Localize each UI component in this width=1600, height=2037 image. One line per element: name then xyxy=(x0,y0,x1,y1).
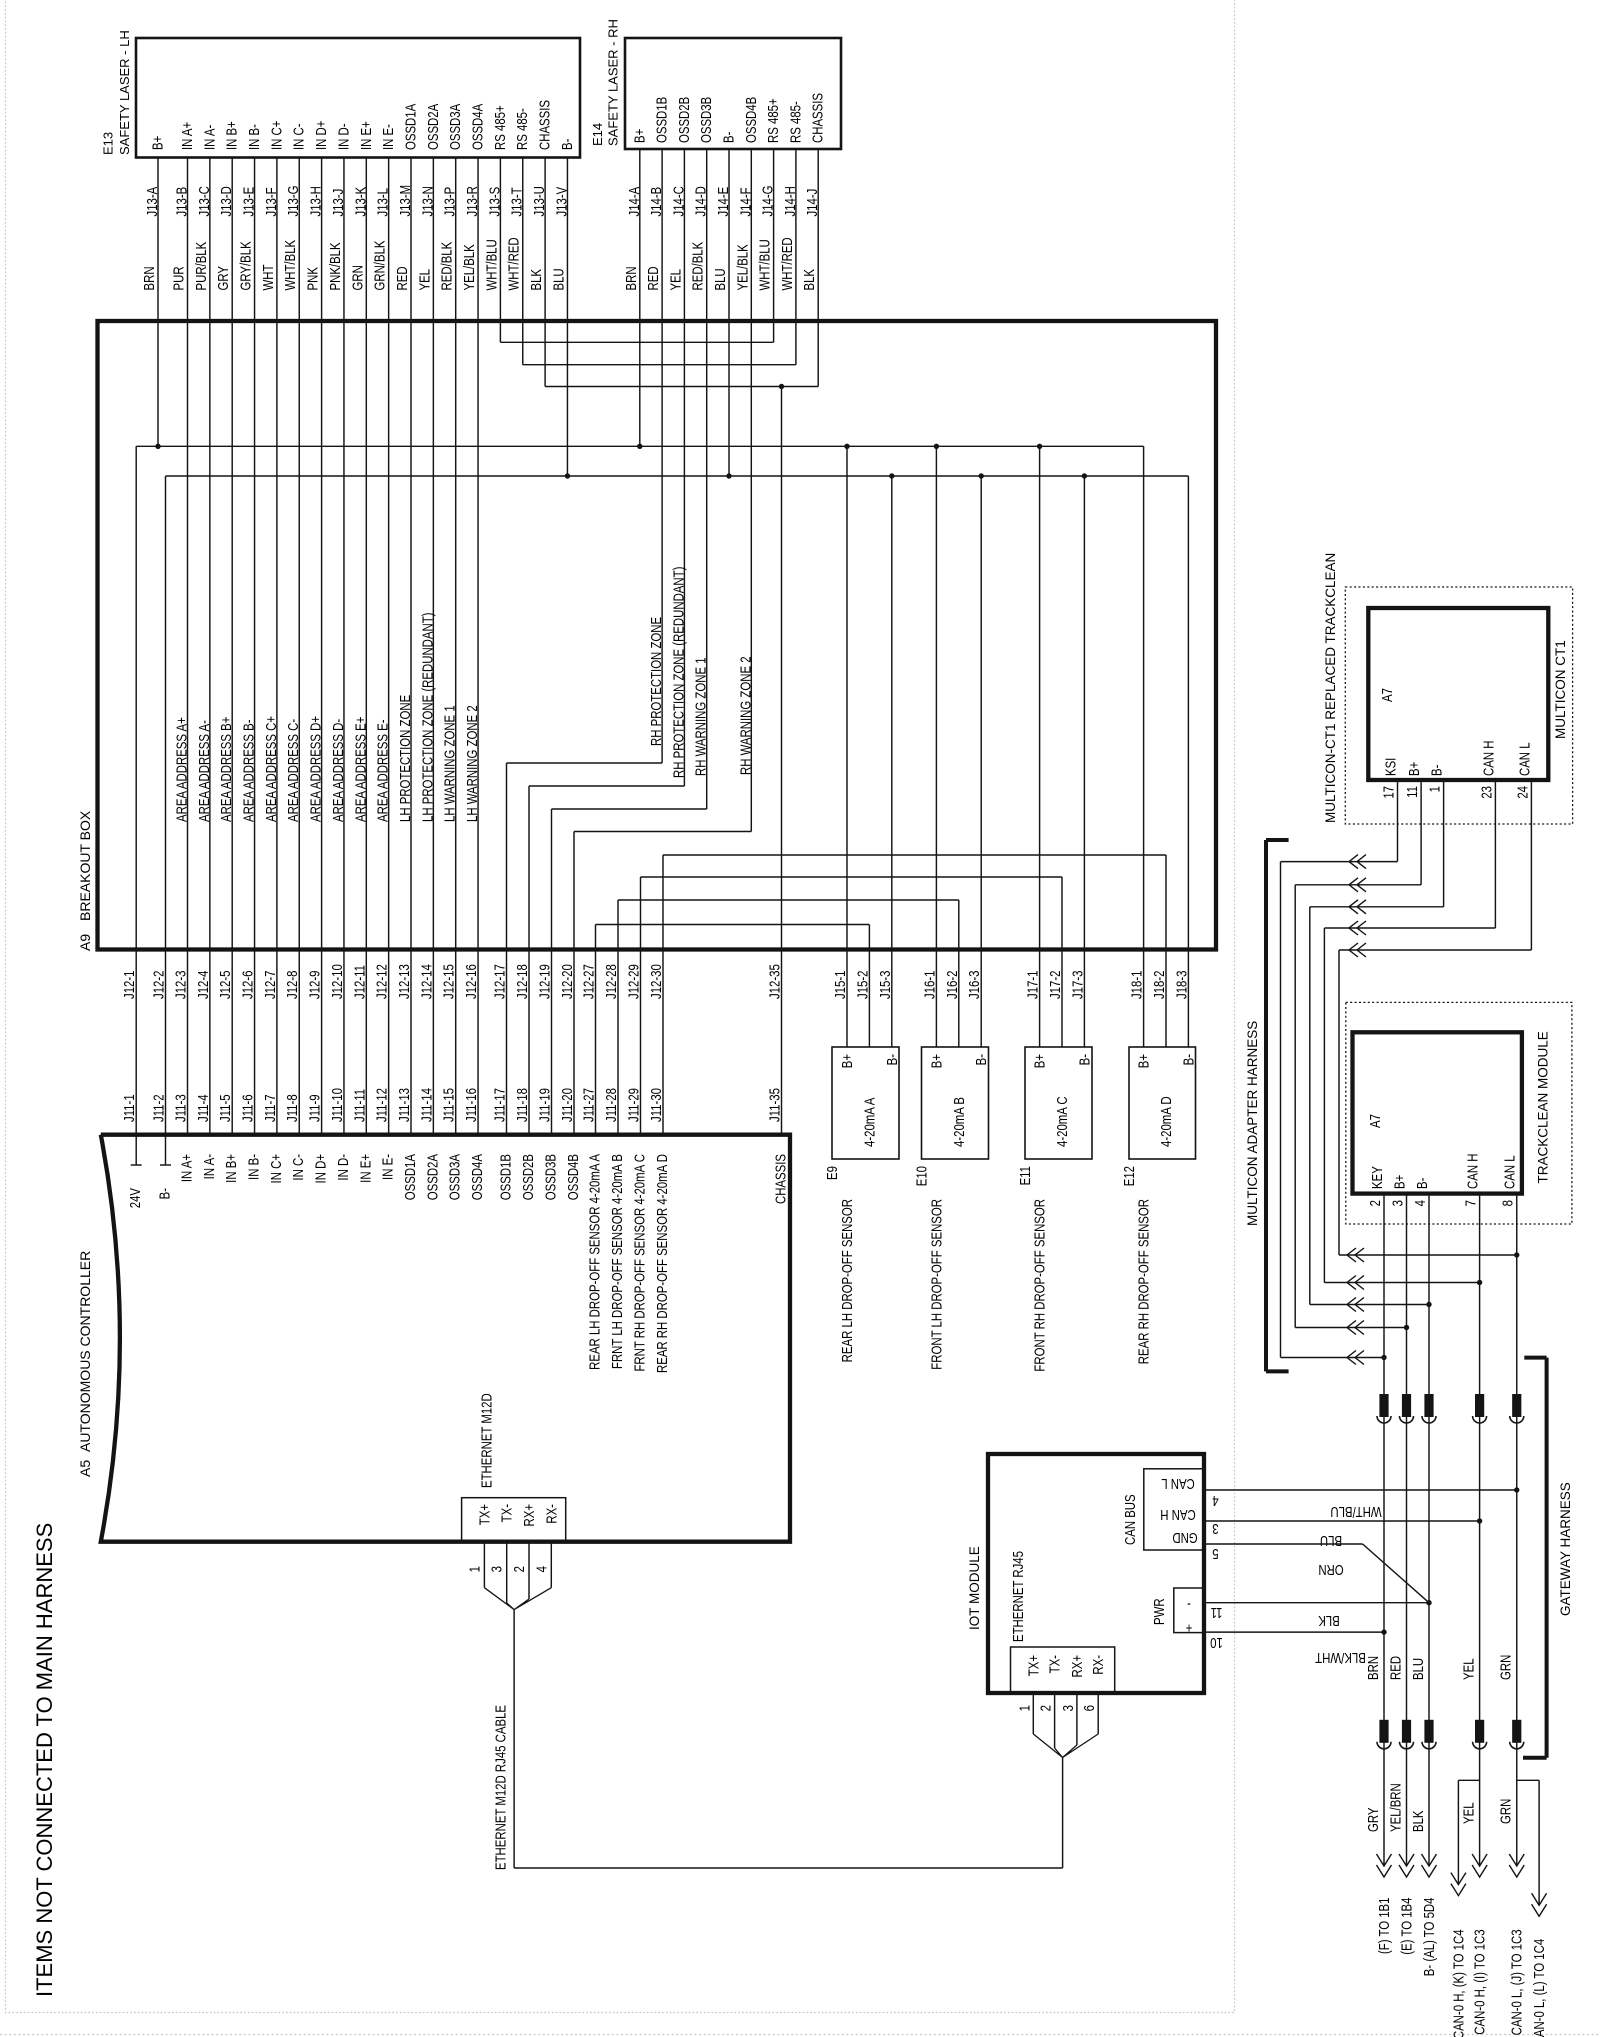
svg-text:B+: B+ xyxy=(631,129,648,143)
svg-text:RH WARNING ZONE 1: RH WARNING ZONE 1 xyxy=(692,657,709,776)
svg-text:BLU: BLU xyxy=(711,268,728,290)
svg-text:RS 485-: RS 485- xyxy=(514,108,531,150)
svg-text:B+: B+ xyxy=(1406,762,1423,776)
svg-text:RX-: RX- xyxy=(1090,1655,1107,1675)
svg-text:AREA ADDRESS B+: AREA ADDRESS B+ xyxy=(218,716,235,822)
svg-text:GRN/BLK: GRN/BLK xyxy=(371,240,388,290)
svg-text:24: 24 xyxy=(1514,785,1531,798)
svg-text:B+: B+ xyxy=(838,1054,855,1068)
svg-text:AREA ADDRESS E-: AREA ADDRESS E- xyxy=(374,719,391,822)
svg-text:J16-2: J16-2 xyxy=(943,970,960,999)
svg-text:IN C+: IN C+ xyxy=(268,120,285,150)
svg-text:J12-15: J12-15 xyxy=(440,964,457,999)
svg-text:J12-2: J12-2 xyxy=(150,970,167,999)
svg-text:J12-1: J12-1 xyxy=(121,970,138,999)
svg-text:+: + xyxy=(1185,1620,1192,1637)
svg-text:J12-35: J12-35 xyxy=(766,964,783,999)
svg-text:J11-28: J11-28 xyxy=(602,1088,619,1122)
svg-text:REAR RH DROP-OFF SENSOR 4-20mA: REAR RH DROP-OFF SENSOR 4-20mA D xyxy=(653,1154,670,1373)
svg-text:J11-35: J11-35 xyxy=(766,1088,783,1122)
svg-text:J11-11: J11-11 xyxy=(351,1089,368,1122)
svg-text:B-: B- xyxy=(883,1054,900,1065)
svg-text:YEL: YEL xyxy=(667,269,684,291)
svg-text:10: 10 xyxy=(1210,1635,1223,1652)
svg-text:OSSD3B: OSSD3B xyxy=(542,1154,559,1200)
svg-text:J11-18: J11-18 xyxy=(513,1088,530,1122)
svg-text:OSSD2A: OSSD2A xyxy=(424,1154,441,1200)
svg-text:GRN: GRN xyxy=(1497,1655,1514,1680)
svg-text:J11-19: J11-19 xyxy=(536,1088,553,1122)
svg-text:PUR/BLK: PUR/BLK xyxy=(192,242,209,291)
svg-text:IN D-: IN D- xyxy=(334,1154,351,1181)
svg-text:B+: B+ xyxy=(149,136,166,150)
svg-text:OSSD1B: OSSD1B xyxy=(497,1154,514,1200)
svg-text:REAR LH DROP-OFF SENSOR: REAR LH DROP-OFF SENSOR xyxy=(838,1199,855,1362)
svg-text:MULTICON CT1: MULTICON CT1 xyxy=(1553,640,1568,739)
svg-text:1: 1 xyxy=(466,1566,483,1572)
svg-text:J11-20: J11-20 xyxy=(558,1088,575,1122)
svg-text:PNK/BLK: PNK/BLK xyxy=(326,242,343,290)
svg-text:RX-: RX- xyxy=(543,1504,560,1524)
svg-text:REAR LH DROP-OFF SENSOR 4-20mA: REAR LH DROP-OFF SENSOR 4-20mA A xyxy=(586,1154,603,1370)
svg-text:OSSD4A: OSSD4A xyxy=(469,1154,486,1200)
svg-text:IN B+: IN B+ xyxy=(223,1154,240,1183)
svg-text:TRACKCLEAN MODULE: TRACKCLEAN MODULE xyxy=(1536,1031,1551,1183)
svg-text:J11-7: J11-7 xyxy=(261,1094,278,1122)
svg-text:4-20mA D: 4-20mA D xyxy=(1157,1096,1174,1147)
svg-text:FRONT LH DROP-OFF SENSOR: FRONT LH DROP-OFF SENSOR xyxy=(928,1199,945,1370)
svg-text:A7: A7 xyxy=(1378,688,1395,702)
svg-text:OSSD3B: OSSD3B xyxy=(698,97,715,143)
svg-text:J18-3: J18-3 xyxy=(1173,970,1190,999)
svg-text:CHASSIS: CHASSIS xyxy=(772,1154,789,1204)
svg-text:5: 5 xyxy=(1212,1546,1218,1563)
svg-text:OSSD2B: OSSD2B xyxy=(519,1154,536,1200)
svg-text:OSSD2A: OSSD2A xyxy=(424,104,441,150)
svg-text:OSSD4A: OSSD4A xyxy=(469,104,486,150)
svg-text:1: 1 xyxy=(1426,786,1443,792)
svg-text:FRNT LH DROP-OFF SENSOR 4-20mA: FRNT LH DROP-OFF SENSOR 4-20mA B xyxy=(608,1154,625,1369)
svg-text:B-: B- xyxy=(1428,765,1445,776)
svg-text:BLK: BLK xyxy=(1409,1810,1426,1832)
svg-text:WHT/RED: WHT/RED xyxy=(778,237,795,290)
svg-text:J11-4: J11-4 xyxy=(194,1094,211,1122)
svg-text:A7: A7 xyxy=(1366,1114,1383,1128)
svg-text:J12-3: J12-3 xyxy=(172,970,189,999)
svg-text:J12-14: J12-14 xyxy=(418,964,435,999)
svg-text:OSSD3A: OSSD3A xyxy=(447,104,464,150)
svg-text:CAN-0 H, (K) TO 1C4: CAN-0 H, (K) TO 1C4 xyxy=(1450,1929,1467,2037)
svg-text:24V: 24V xyxy=(127,1188,144,1208)
svg-text:B+: B+ xyxy=(1135,1054,1152,1068)
svg-text:IN A+: IN A+ xyxy=(178,1154,195,1182)
svg-text:E12: E12 xyxy=(1120,1166,1137,1186)
svg-text:IN A-: IN A- xyxy=(200,1154,217,1179)
svg-text:4-20mA C: 4-20mA C xyxy=(1053,1096,1070,1147)
svg-text:SAFETY LASER - LH: SAFETY LASER - LH xyxy=(117,30,132,155)
svg-text:J15-2: J15-2 xyxy=(854,970,871,999)
svg-text:YEL: YEL xyxy=(1460,1658,1477,1680)
svg-text:RS 485-: RS 485- xyxy=(787,101,804,143)
svg-text:(F) TO 1B1: (F) TO 1B1 xyxy=(1375,1897,1392,1954)
svg-text:8: 8 xyxy=(1499,1200,1516,1206)
svg-text:J12-27: J12-27 xyxy=(580,964,597,999)
svg-text:-: - xyxy=(1187,1597,1191,1614)
svg-text:WHT/BLU: WHT/BLU xyxy=(483,239,500,290)
svg-text:IN C+: IN C+ xyxy=(267,1154,284,1184)
svg-text:J11-27: J11-27 xyxy=(580,1088,597,1122)
svg-text:J16-3: J16-3 xyxy=(966,970,983,999)
svg-text:RED/BLK: RED/BLK xyxy=(438,242,455,291)
svg-text:B-: B- xyxy=(1413,1178,1430,1189)
svg-text:YEL: YEL xyxy=(416,269,433,291)
svg-text:WHT/BLU: WHT/BLU xyxy=(1330,1504,1381,1521)
svg-text:WHT/BLK: WHT/BLK xyxy=(282,240,299,291)
svg-text:J12-29: J12-29 xyxy=(625,964,642,999)
svg-text:BRN: BRN xyxy=(1364,1656,1381,1680)
svg-text:J11-8: J11-8 xyxy=(284,1094,301,1122)
svg-text:TX+: TX+ xyxy=(1025,1655,1042,1676)
svg-text:J17-3: J17-3 xyxy=(1069,970,1086,999)
svg-text:4: 4 xyxy=(1212,1493,1219,1510)
svg-text:TX-: TX- xyxy=(498,1504,515,1522)
svg-text:CAN H: CAN H xyxy=(1464,1154,1481,1189)
svg-text:BLU: BLU xyxy=(1320,1533,1342,1550)
svg-text:ETHERNET RJ45: ETHERNET RJ45 xyxy=(1009,1551,1026,1642)
svg-text:J12-4: J12-4 xyxy=(194,970,211,999)
svg-text:J12-5: J12-5 xyxy=(217,970,234,999)
svg-text:CAN L: CAN L xyxy=(1161,1476,1195,1493)
svg-text:ITEMS NOT CONNECTED TO MAIN HA: ITEMS NOT CONNECTED TO MAIN HARNESS xyxy=(32,1523,57,1997)
svg-text:IN D+: IN D+ xyxy=(313,120,330,150)
svg-text:MULTICON ADAPTER HARNESS: MULTICON ADAPTER HARNESS xyxy=(1245,1021,1260,1226)
svg-text:GATEWAY HARNESS: GATEWAY HARNESS xyxy=(1558,1482,1573,1616)
svg-text:A5: A5 xyxy=(77,1460,93,1477)
svg-text:PUR: PUR xyxy=(170,266,187,290)
svg-text:RED/BLK: RED/BLK xyxy=(689,242,706,291)
svg-text:YEL/BLK: YEL/BLK xyxy=(734,244,751,290)
svg-text:YEL/BRN: YEL/BRN xyxy=(1387,1783,1404,1832)
svg-text:BLK: BLK xyxy=(801,269,818,291)
svg-text:J12-6: J12-6 xyxy=(239,970,256,999)
svg-text:2: 2 xyxy=(1366,1200,1383,1206)
svg-text:4-20mA A: 4-20mA A xyxy=(861,1098,878,1147)
svg-text:CAN BUS: CAN BUS xyxy=(1121,1494,1138,1545)
svg-text:J12-10: J12-10 xyxy=(328,964,345,999)
svg-text:E14: E14 xyxy=(590,123,605,146)
svg-text:B-: B- xyxy=(973,1054,990,1065)
svg-text:IN A-: IN A- xyxy=(201,125,218,150)
svg-text:RH PROTECTION ZONE: RH PROTECTION ZONE xyxy=(648,617,665,746)
svg-text:AREA ADDRESS D-: AREA ADDRESS D- xyxy=(329,719,346,822)
svg-text:OSSD4B: OSSD4B xyxy=(564,1154,581,1200)
svg-text:J11-16: J11-16 xyxy=(463,1088,480,1122)
svg-text:OSSD1B: OSSD1B xyxy=(653,97,670,143)
svg-text:FRNT RH DROP-OFF SENSOR 4-20mA: FRNT RH DROP-OFF SENSOR 4-20mA C xyxy=(631,1154,648,1372)
svg-text:J12-20: J12-20 xyxy=(558,964,575,999)
svg-text:RX+: RX+ xyxy=(520,1504,537,1527)
svg-text:AREA ADDRESS C-: AREA ADDRESS C- xyxy=(285,719,302,822)
svg-text:11: 11 xyxy=(1211,1605,1223,1622)
svg-text:TX-: TX- xyxy=(1046,1655,1063,1673)
svg-text:J12-8: J12-8 xyxy=(284,970,301,999)
svg-text:OSSD1A: OSSD1A xyxy=(402,104,419,150)
svg-text:B+: B+ xyxy=(1031,1054,1048,1068)
svg-text:J11-3: J11-3 xyxy=(172,1094,189,1122)
svg-text:B-: B- xyxy=(558,139,575,150)
svg-text:J16-1: J16-1 xyxy=(921,970,938,999)
svg-text:LH PROTECTION ZONE: LH PROTECTION ZONE xyxy=(396,695,413,822)
svg-text:MULTICON-CT1 REPLACED TRACKCLE: MULTICON-CT1 REPLACED TRACKCLEAN xyxy=(1323,553,1338,823)
svg-text:11: 11 xyxy=(1404,786,1421,798)
svg-text:J12-12: J12-12 xyxy=(373,964,390,999)
svg-text:CAN-0 L, (L) TO 1C4: CAN-0 L, (L) TO 1C4 xyxy=(1531,1938,1548,2037)
svg-text:RED: RED xyxy=(645,266,662,290)
svg-text:6: 6 xyxy=(1081,1705,1098,1711)
svg-text:J11-1: J11-1 xyxy=(121,1094,138,1122)
svg-text:J11-17: J11-17 xyxy=(491,1088,508,1122)
svg-text:J12-13: J12-13 xyxy=(395,964,412,999)
svg-text:B-: B- xyxy=(1076,1054,1093,1065)
svg-text:LH WARNING ZONE 2: LH WARNING ZONE 2 xyxy=(464,705,481,822)
svg-text:E10: E10 xyxy=(913,1166,930,1186)
svg-text:B-: B- xyxy=(720,132,737,143)
svg-text:BLK: BLK xyxy=(1318,1613,1340,1630)
svg-text:RED: RED xyxy=(393,266,410,290)
svg-text:7: 7 xyxy=(1462,1200,1479,1206)
svg-text:J11-10: J11-10 xyxy=(328,1088,345,1122)
svg-text:AREA ADDRESS D+: AREA ADDRESS D+ xyxy=(307,716,324,822)
svg-text:WHT/RED: WHT/RED xyxy=(505,237,522,290)
svg-text:J11-9: J11-9 xyxy=(306,1094,323,1122)
svg-text:BREAKOUT BOX: BREAKOUT BOX xyxy=(77,810,93,921)
svg-text:OSSD2B: OSSD2B xyxy=(675,97,692,143)
svg-text:J12-7: J12-7 xyxy=(261,970,278,999)
svg-text:BLK: BLK xyxy=(528,269,545,291)
svg-text:IN B+: IN B+ xyxy=(223,121,240,150)
svg-text:GRY: GRY xyxy=(215,266,232,291)
svg-text:IN C-: IN C- xyxy=(290,1154,307,1181)
svg-text:4-20mA B: 4-20mA B xyxy=(950,1097,967,1147)
svg-text:CHASSIS: CHASSIS xyxy=(809,93,826,143)
svg-text:B+: B+ xyxy=(928,1054,945,1068)
svg-text:WHT/BLU: WHT/BLU xyxy=(756,239,773,290)
svg-text:IN E-: IN E- xyxy=(379,1154,396,1180)
svg-text:CHASSIS: CHASSIS xyxy=(536,100,553,150)
svg-text:LH PROTECTION ZONE (REDUNDANT): LH PROTECTION ZONE (REDUNDANT) xyxy=(419,613,436,822)
svg-text:GRY/BLK: GRY/BLK xyxy=(237,241,254,290)
svg-text:J11-29: J11-29 xyxy=(625,1088,642,1122)
svg-text:BLU: BLU xyxy=(550,268,567,290)
svg-text:BRN: BRN xyxy=(622,266,639,290)
svg-text:E11: E11 xyxy=(1016,1166,1033,1185)
svg-text:CAN L: CAN L xyxy=(1501,1155,1518,1189)
svg-text:TX+: TX+ xyxy=(476,1504,493,1525)
svg-text:J15-1: J15-1 xyxy=(831,970,848,999)
svg-text:J11-13: J11-13 xyxy=(395,1088,412,1122)
svg-text:J12-9: J12-9 xyxy=(306,970,323,999)
svg-text:2: 2 xyxy=(1037,1705,1054,1711)
svg-text:B-: B- xyxy=(1180,1054,1197,1065)
svg-text:RED: RED xyxy=(1387,1656,1404,1680)
svg-text:SAFETY LASER - RH: SAFETY LASER - RH xyxy=(606,19,621,146)
svg-text:3: 3 xyxy=(1059,1705,1076,1711)
svg-text:J11-12: J11-12 xyxy=(373,1088,390,1122)
svg-text:CAN-0 H, (I) TO 1C3: CAN-0 H, (I) TO 1C3 xyxy=(1471,1929,1488,2034)
svg-text:IN E-: IN E- xyxy=(380,124,397,150)
svg-text:J17-1: J17-1 xyxy=(1024,970,1041,999)
svg-text:23: 23 xyxy=(1478,786,1495,799)
svg-text:J12-11: J12-11 xyxy=(351,965,368,999)
svg-text:J12-16: J12-16 xyxy=(463,964,480,999)
svg-text:4: 4 xyxy=(1411,1199,1428,1206)
svg-text:AREA ADDRESS A-: AREA ADDRESS A- xyxy=(195,720,212,822)
svg-text:REAR RH DROP-OFF SENSOR: REAR RH DROP-OFF SENSOR xyxy=(1135,1199,1152,1364)
svg-text:ORN: ORN xyxy=(1318,1562,1343,1579)
svg-text:YEL: YEL xyxy=(1460,1802,1477,1824)
svg-text:J11-2: J11-2 xyxy=(150,1094,167,1122)
svg-text:4: 4 xyxy=(533,1565,550,1572)
svg-text:J12-28: J12-28 xyxy=(602,964,619,999)
svg-text:RS 485+: RS 485+ xyxy=(491,105,508,150)
svg-text:BRN: BRN xyxy=(140,266,157,290)
svg-text:LH WARNING ZONE 1: LH WARNING ZONE 1 xyxy=(441,705,458,822)
svg-text:E9: E9 xyxy=(823,1166,840,1180)
svg-text:AREA ADDRESS E+: AREA ADDRESS E+ xyxy=(352,716,369,822)
svg-text:RX+: RX+ xyxy=(1068,1655,1085,1678)
svg-text:GRY: GRY xyxy=(1364,1807,1381,1832)
svg-text:AUTONOMOUS CONTROLLER: AUTONOMOUS CONTROLLER xyxy=(77,1251,93,1452)
svg-text:ETHERNET M12D RJ45 CABLE: ETHERNET M12D RJ45 CABLE xyxy=(492,1705,509,1870)
svg-text:J11-30: J11-30 xyxy=(647,1088,664,1122)
svg-text:IN E+: IN E+ xyxy=(357,121,374,150)
svg-text:OSSD4B: OSSD4B xyxy=(742,97,759,143)
svg-text:RS 485+: RS 485+ xyxy=(765,98,782,143)
svg-text:ETHERNET M12D: ETHERNET M12D xyxy=(478,1393,495,1488)
svg-text:E13: E13 xyxy=(101,132,116,155)
svg-text:IN B-: IN B- xyxy=(246,124,263,150)
svg-text:J17-2: J17-2 xyxy=(1046,970,1063,999)
svg-text:OSSD1A: OSSD1A xyxy=(401,1154,418,1200)
svg-text:J18-1: J18-1 xyxy=(1128,970,1145,999)
svg-text:WHT: WHT xyxy=(259,265,276,291)
svg-text:RH PROTECTION ZONE (REDUNDANT): RH PROTECTION ZONE (REDUNDANT) xyxy=(670,567,687,778)
svg-text:BLK/WHT: BLK/WHT xyxy=(1315,1650,1366,1667)
svg-text:CAN H: CAN H xyxy=(1480,741,1497,776)
svg-text:J12-17: J12-17 xyxy=(491,964,508,999)
svg-text:AREA ADDRESS A+: AREA ADDRESS A+ xyxy=(173,717,190,822)
svg-text:AREA ADDRESS C+: AREA ADDRESS C+ xyxy=(262,716,279,822)
svg-text:KSI: KSI xyxy=(1382,758,1399,776)
svg-text:CAN-0 L, (J) TO 1C3: CAN-0 L, (J) TO 1C3 xyxy=(1508,1929,1525,2035)
svg-text:IN D-: IN D- xyxy=(335,123,352,150)
svg-text:2: 2 xyxy=(510,1566,527,1572)
svg-text:3: 3 xyxy=(1212,1521,1218,1538)
svg-text:J12-19: J12-19 xyxy=(536,964,553,999)
svg-text:J11-15: J11-15 xyxy=(440,1088,457,1122)
svg-text:J11-14: J11-14 xyxy=(418,1088,435,1122)
svg-text:FRONT RH DROP-OFF SENSOR: FRONT RH DROP-OFF SENSOR xyxy=(1031,1199,1048,1372)
svg-text:AREA ADDRESS B-: AREA ADDRESS B- xyxy=(240,719,257,822)
svg-text:1: 1 xyxy=(1016,1705,1033,1711)
svg-text:J18-2: J18-2 xyxy=(1150,970,1167,999)
svg-text:IN D+: IN D+ xyxy=(312,1154,329,1184)
svg-text:IN A+: IN A+ xyxy=(178,122,195,150)
svg-text:IN C-: IN C- xyxy=(290,123,307,150)
svg-text:GRN: GRN xyxy=(1497,1799,1514,1824)
svg-text:IN B-: IN B- xyxy=(245,1154,262,1180)
svg-text:CAN L: CAN L xyxy=(1516,742,1533,776)
svg-text:J11-5: J11-5 xyxy=(217,1094,234,1122)
svg-text:IN E+: IN E+ xyxy=(357,1154,374,1183)
svg-text:PNK: PNK xyxy=(304,267,321,291)
svg-text:RH WARNING ZONE 2: RH WARNING ZONE 2 xyxy=(737,656,754,775)
svg-text:J12-18: J12-18 xyxy=(513,964,530,999)
svg-text:(E) TO 1B4: (E) TO 1B4 xyxy=(1398,1897,1415,1955)
svg-text:PWR: PWR xyxy=(1150,1598,1167,1625)
svg-text:B+: B+ xyxy=(1391,1175,1408,1189)
svg-text:GND: GND xyxy=(1172,1530,1197,1547)
svg-text:J11-6: J11-6 xyxy=(239,1094,256,1122)
svg-text:BLU: BLU xyxy=(1409,1658,1426,1680)
svg-text:B-: B- xyxy=(156,1188,173,1199)
svg-text:17: 17 xyxy=(1380,786,1397,799)
svg-text:KEY: KEY xyxy=(1368,1166,1385,1189)
svg-text:A9: A9 xyxy=(77,934,93,951)
svg-text:GRN: GRN xyxy=(349,265,366,290)
svg-text:IOT MODULE: IOT MODULE xyxy=(967,1546,982,1630)
svg-text:3: 3 xyxy=(488,1566,505,1572)
svg-text:OSSD3A: OSSD3A xyxy=(446,1154,463,1200)
svg-text:J15-3: J15-3 xyxy=(876,970,893,999)
svg-text:J12-30: J12-30 xyxy=(647,964,664,999)
svg-text:B- (AL) TO 5D4: B- (AL) TO 5D4 xyxy=(1420,1897,1437,1976)
svg-text:YEL/BLK: YEL/BLK xyxy=(461,244,478,290)
svg-text:CAN H: CAN H xyxy=(1160,1507,1195,1524)
svg-text:3: 3 xyxy=(1389,1200,1406,1206)
